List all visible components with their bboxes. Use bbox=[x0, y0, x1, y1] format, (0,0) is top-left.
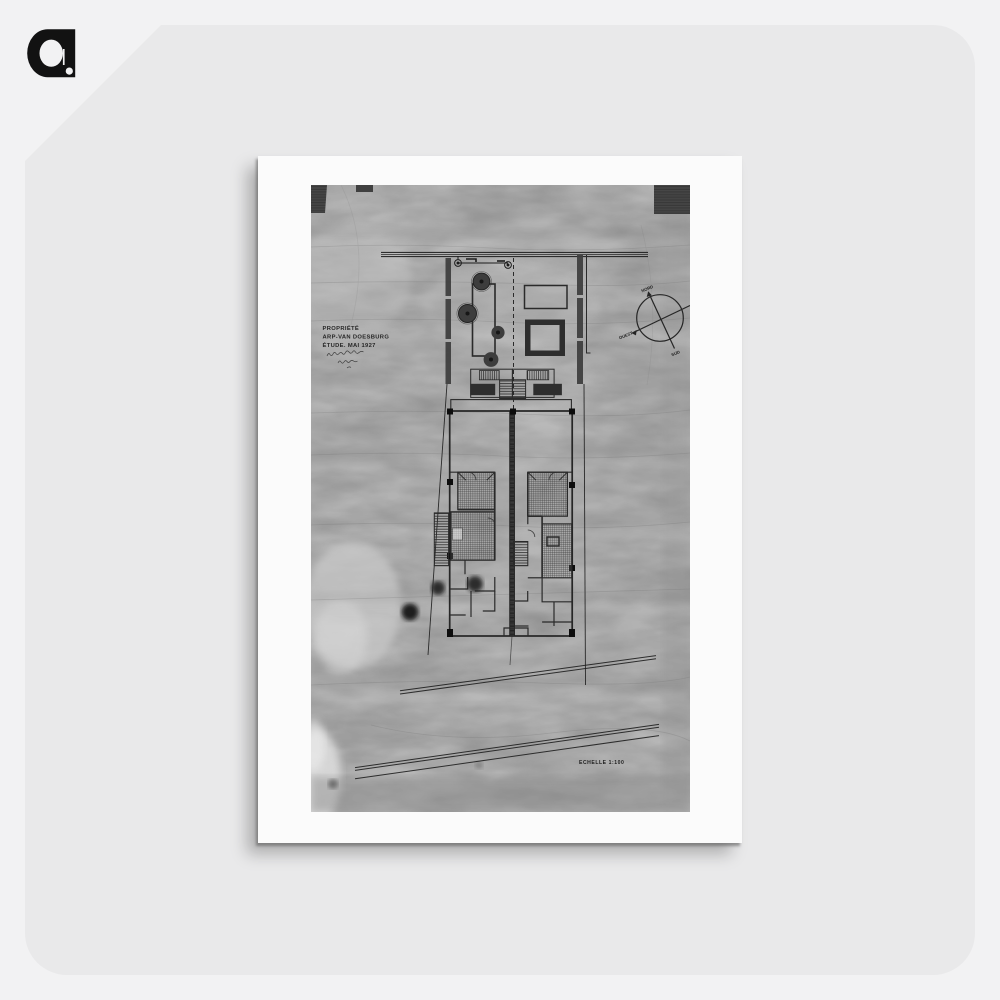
svg-text:ÉTUDE. MAI 1927: ÉTUDE. MAI 1927 bbox=[323, 341, 376, 349]
svg-text:ECHELLE 1:100: ECHELLE 1:100 bbox=[579, 760, 624, 766]
svg-text:PROPRIÉTÉ: PROPRIÉTÉ bbox=[323, 324, 360, 332]
svg-text:ARP-VAN DOESBURG: ARP-VAN DOESBURG bbox=[323, 335, 390, 341]
